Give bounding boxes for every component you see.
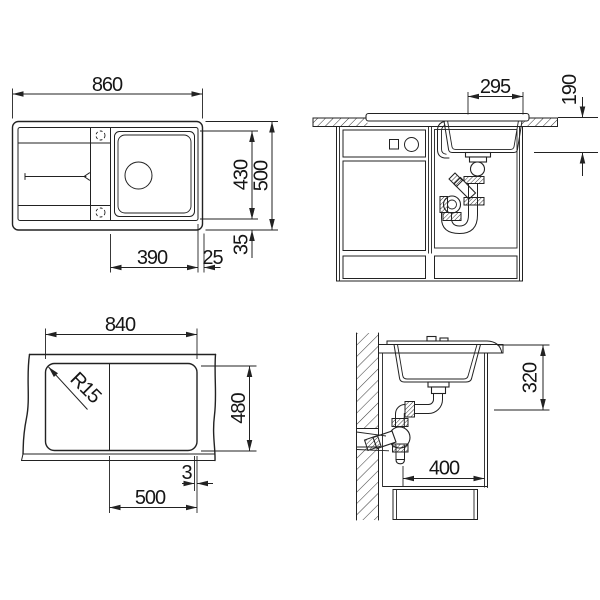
cutout-depth-dim-label: 480 — [228, 392, 250, 423]
front-section-drawing: 295 190 — [313, 74, 598, 281]
clearance-depth-dim-label: 320 — [520, 362, 542, 393]
top-view-drawing: 860 500 430 35 390 — [13, 74, 279, 273]
top-depth-dim-label: 500 — [251, 160, 273, 191]
dim-400: 400 — [403, 458, 485, 487]
bowl-edge-dim-label: 25 — [202, 247, 223, 269]
drawer-front — [343, 130, 426, 157]
plinth-right — [435, 256, 518, 279]
dim-840: 840 — [46, 314, 198, 359]
rim-bottom-dim-label: 35 — [231, 234, 253, 255]
radius-callout: R15 — [49, 367, 106, 410]
worktop-slab — [22, 355, 216, 461]
bowl-width-dim-label: 390 — [137, 247, 168, 269]
corner-radius-label: R15 — [66, 368, 106, 408]
drawer-handle-square — [390, 140, 399, 150]
cabinet-depth-dim-label: 400 — [429, 458, 460, 480]
plinth-left — [343, 256, 426, 279]
drainboard-groove — [25, 173, 90, 180]
side-section-drawing: 320 400 — [357, 333, 550, 520]
front-bowl-width-dim-label: 295 — [480, 76, 511, 98]
drain-hole — [125, 162, 152, 189]
sink-rim-front — [366, 114, 529, 122]
dim-35: 35 — [231, 209, 253, 258]
bowl-plan — [115, 132, 195, 217]
break-line-left — [23, 355, 30, 455]
sink-installation-drawing: 860 500 430 35 390 — [0, 0, 600, 600]
bowl-offset-dim-label: 500 — [135, 487, 166, 509]
cabinet-door — [343, 161, 426, 251]
rim-bullnose — [487, 341, 502, 353]
ball-joint — [471, 162, 485, 176]
dim-295: 295 — [468, 76, 523, 115]
top-width-dim-label: 860 — [92, 74, 123, 96]
dim-3: 3 — [181, 456, 213, 513]
break-line-right — [214, 355, 216, 461]
cutout-width-dim-label: 840 — [105, 314, 136, 336]
tap-hole-cover — [427, 337, 436, 342]
sink-outline — [13, 122, 203, 231]
front-bowl-depth-dim-label: 190 — [559, 74, 581, 105]
dim-390-25: 390 25 — [111, 224, 224, 273]
drawer-handle-knob — [405, 138, 419, 152]
dim-480: 480 — [201, 366, 257, 451]
cutout-rect — [46, 364, 198, 451]
wall-section — [357, 333, 379, 520]
cutout-plan-drawing: R15 840 480 3 500 — [22, 314, 257, 513]
plinth-side — [393, 490, 478, 520]
inner-depth-dim-label: 430 — [231, 159, 253, 190]
technical-drawing-canvas: 860 500 430 35 390 — [0, 0, 600, 600]
tap-hole-markers — [96, 131, 105, 217]
dim-860: 860 — [13, 74, 203, 119]
divider-gap-dim-label: 3 — [181, 462, 192, 484]
dim-320: 320 — [494, 345, 550, 410]
bowl-side-section — [394, 345, 481, 383]
siphon-front — [440, 153, 491, 234]
dim-430: 430 — [200, 131, 258, 219]
